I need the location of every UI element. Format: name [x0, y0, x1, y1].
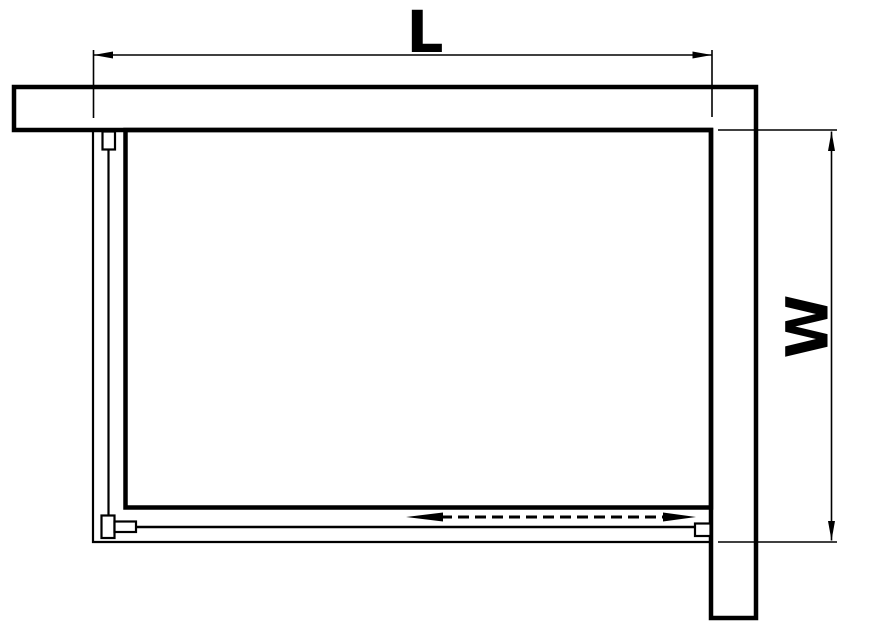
w-dimension-label: W [774, 295, 842, 359]
bottom-left-roller-arm [115, 522, 137, 533]
bottom-left-roller-bracket [102, 516, 115, 539]
drawing-canvas: L W [0, 0, 875, 635]
bottom-right-roller-bracket [695, 524, 711, 537]
top-wall-profile-bracket [103, 132, 116, 150]
shower-enclosure-plan-drawing: L W [0, 0, 875, 635]
l-dimension-label: L [407, 0, 444, 66]
